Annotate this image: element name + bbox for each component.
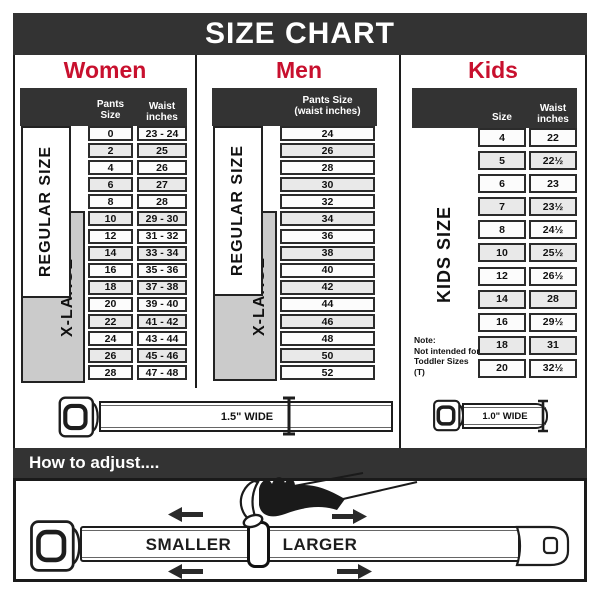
men-size-table: Pants Size (waist inches) 24262830323436…: [212, 88, 377, 382]
women-table-cell: 37 - 38: [137, 280, 187, 295]
kids-table-cell: 23½: [529, 197, 577, 216]
men-table-cell: 24: [280, 126, 375, 141]
women-table-cell: 0: [88, 126, 133, 141]
women-table-cell: 2: [88, 143, 133, 158]
men-table-header: Pants Size (waist inches): [212, 88, 377, 126]
men-table-cell: 32: [280, 194, 375, 209]
women-section-title: Women: [15, 57, 195, 84]
men-table-cell: 36: [280, 229, 375, 244]
adult-belt-strap: 1.5" WIDE: [99, 401, 393, 432]
right-border-line: [585, 55, 587, 448]
women-table-cell: 22: [88, 314, 133, 329]
width-indicator-icon: [281, 396, 297, 436]
left-border-line: [13, 55, 15, 448]
women-regular-size-label-box: REGULAR SIZE: [21, 126, 71, 298]
size-chart-title-bar: SIZE CHART: [13, 13, 587, 55]
men-table-cell: 38: [280, 246, 375, 261]
women-table-cell: 39 - 40: [137, 297, 187, 312]
women-table-cell: 45 - 46: [137, 348, 187, 363]
size-chart-page: SIZE CHART Women Men Kids Pants Size Wai…: [0, 0, 600, 600]
women-waist-header: Waist inches: [137, 101, 187, 123]
men-regular-size-label-box: REGULAR SIZE: [213, 126, 263, 296]
kids-table-cell: 26½: [529, 267, 577, 286]
women-table-cell: 28: [137, 194, 187, 209]
women-table-cell: 18: [88, 280, 133, 295]
women-table-cell: 31 - 32: [137, 229, 187, 244]
women-table-cell: 27: [137, 177, 187, 192]
kids-size-table: Size Waist inches 422522½623723½824½1025…: [412, 88, 577, 382]
kids-table-cell: 10: [478, 243, 526, 262]
men-table-cell: 46: [280, 314, 375, 329]
kids-table-cell: 12: [478, 267, 526, 286]
kids-size-header: Size: [478, 112, 526, 123]
kids-note: Note: Not intended for Toddler Sizes (T): [414, 335, 480, 377]
kids-table-cell: 6: [478, 174, 526, 193]
hand-adjust-icon: [181, 469, 451, 549]
seatbelt-buckle-icon: [57, 394, 103, 440]
arrow-right-icon: [336, 564, 372, 579]
women-table-cell: 12: [88, 229, 133, 244]
men-regular-size-label: REGULAR SIZE: [229, 145, 247, 276]
kids-size-side-label: KIDS SIZE: [434, 206, 455, 303]
men-table-cell: 28: [280, 160, 375, 175]
men-table-cell: 26: [280, 143, 375, 158]
kids-table-cell: 23: [529, 174, 577, 193]
kids-table-cell: 16: [478, 313, 526, 332]
kids-table-cell: 18: [478, 336, 526, 355]
women-table-cell: 16: [88, 263, 133, 278]
kids-table-cell: 31: [529, 336, 577, 355]
kids-table-cell: 32½: [529, 359, 577, 378]
men-table-cell: 50: [280, 348, 375, 363]
women-table-cell: 47 - 48: [137, 365, 187, 380]
women-table-cell: 33 - 34: [137, 246, 187, 261]
women-table-cell: 10: [88, 211, 133, 226]
kids-table-cell: 22: [529, 128, 577, 147]
women-table-cell: 25: [137, 143, 187, 158]
women-table-cell: 20: [88, 297, 133, 312]
kids-table-cell: 25½: [529, 243, 577, 262]
men-table-cell: 52: [280, 365, 375, 380]
women-table-cell: 6: [88, 177, 133, 192]
women-table-cell: 26: [88, 348, 133, 363]
kids-table-cell: 24½: [529, 220, 577, 239]
kids-table-cell: 7: [478, 197, 526, 216]
adjust-buckle-icon: [28, 517, 86, 575]
adjust-illustration-stage: SMALLER LARGER: [16, 481, 584, 579]
men-table-cell: 42: [280, 280, 375, 295]
men-kids-divider-line: [399, 55, 401, 448]
kids-table-cell: 29½: [529, 313, 577, 332]
kids-table-cell: 8: [478, 220, 526, 239]
women-pants-size-header: Pants Size: [86, 99, 135, 121]
arrow-left-icon: [168, 564, 204, 579]
kids-table-cell: 20: [478, 359, 526, 378]
women-table-cell: 26: [137, 160, 187, 175]
page-title: SIZE CHART: [205, 17, 395, 51]
kids-section-title: Kids: [403, 57, 583, 84]
women-table-cell: 4: [88, 160, 133, 175]
women-table-cell: 8: [88, 194, 133, 209]
kids-table-cell: 4: [478, 128, 526, 147]
belt-tip-icon: [508, 522, 578, 570]
women-men-divider-line: [195, 55, 197, 388]
women-table-cell: 41 - 42: [137, 314, 187, 329]
kids-table-cell: 28: [529, 290, 577, 309]
men-section-title: Men: [199, 57, 399, 84]
women-table-cell: 35 - 36: [137, 263, 187, 278]
men-table-cell: 30: [280, 177, 375, 192]
kids-width-indicator-icon: [536, 399, 550, 433]
women-table-cell: 29 - 30: [137, 211, 187, 226]
kids-table-cell: 22½: [529, 151, 577, 170]
women-table-cell: 28: [88, 365, 133, 380]
kids-table-header: Size Waist inches: [412, 88, 577, 128]
men-table-cell: 34: [280, 211, 375, 226]
kids-belt-width-label: 1.0" WIDE: [474, 405, 536, 427]
women-table-cell: 14: [88, 246, 133, 261]
women-size-table: Pants Size Waist inches 023 - 2422542662…: [20, 88, 187, 382]
how-to-adjust-title: How to adjust....: [13, 453, 159, 473]
kids-table-cell: 14: [478, 290, 526, 309]
men-table-cell: 40: [280, 263, 375, 278]
men-table-cell: 48: [280, 331, 375, 346]
men-table-cell: 44: [280, 297, 375, 312]
women-table-cell: 43 - 44: [137, 331, 187, 346]
kids-waist-header: Waist inches: [529, 103, 577, 125]
kids-table-cell: 5: [478, 151, 526, 170]
women-table-header: Pants Size Waist inches: [20, 88, 187, 126]
women-table-cell: 24: [88, 331, 133, 346]
women-table-cell: 23 - 24: [137, 126, 187, 141]
women-regular-size-label: REGULAR SIZE: [37, 146, 55, 277]
men-pants-size-header: Pants Size (waist inches): [280, 95, 375, 117]
